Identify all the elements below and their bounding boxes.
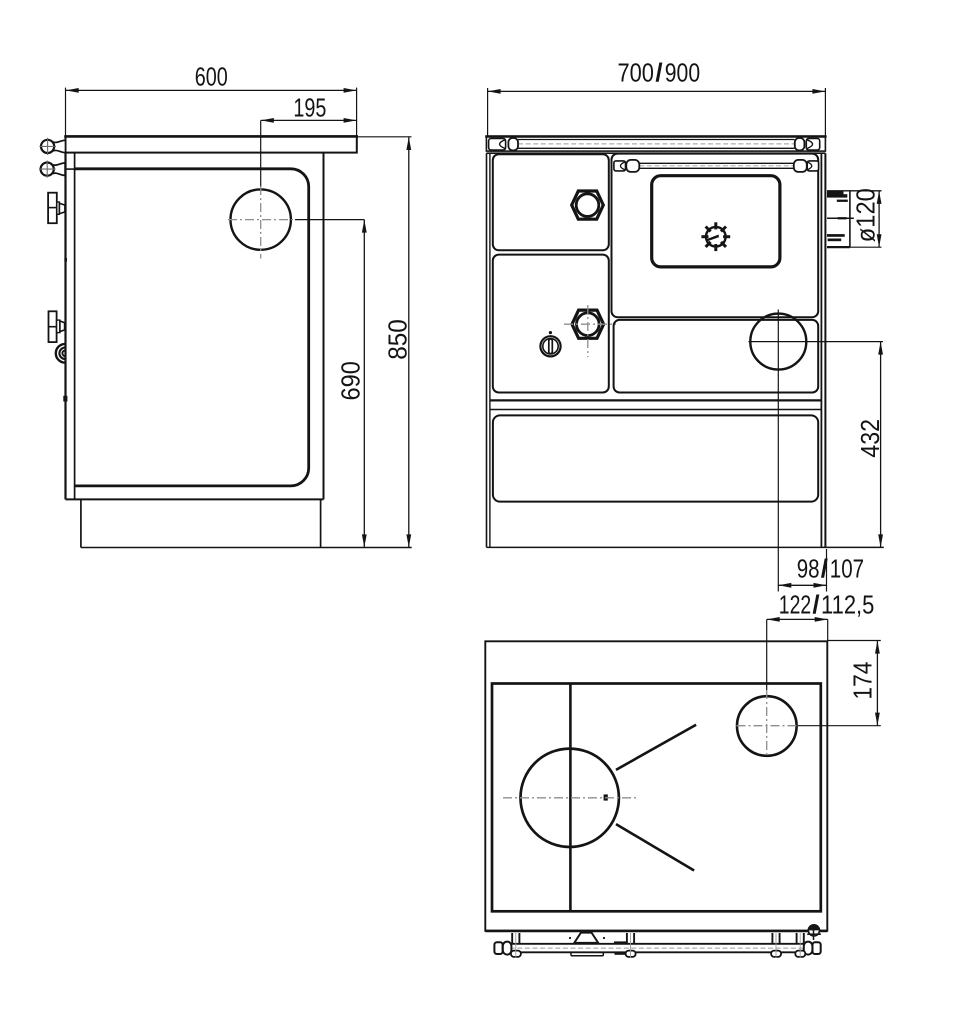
svg-text:195: 195 xyxy=(293,92,326,122)
svg-text:98: 98 xyxy=(797,554,820,584)
svg-text:122: 122 xyxy=(779,590,811,620)
svg-text:/: / xyxy=(812,590,819,620)
svg-text:900: 900 xyxy=(665,58,700,88)
svg-text:ø120: ø120 xyxy=(851,188,881,242)
svg-text:174: 174 xyxy=(848,662,878,700)
svg-text:/: / xyxy=(821,554,828,584)
svg-text:600: 600 xyxy=(195,62,228,92)
svg-text:107: 107 xyxy=(830,554,864,584)
svg-text:112,5: 112,5 xyxy=(821,590,874,620)
svg-text:850: 850 xyxy=(382,319,412,360)
svg-text:700: 700 xyxy=(618,58,654,88)
svg-text:/: / xyxy=(655,58,662,88)
svg-text:432: 432 xyxy=(855,419,885,458)
svg-text:690: 690 xyxy=(335,361,365,400)
